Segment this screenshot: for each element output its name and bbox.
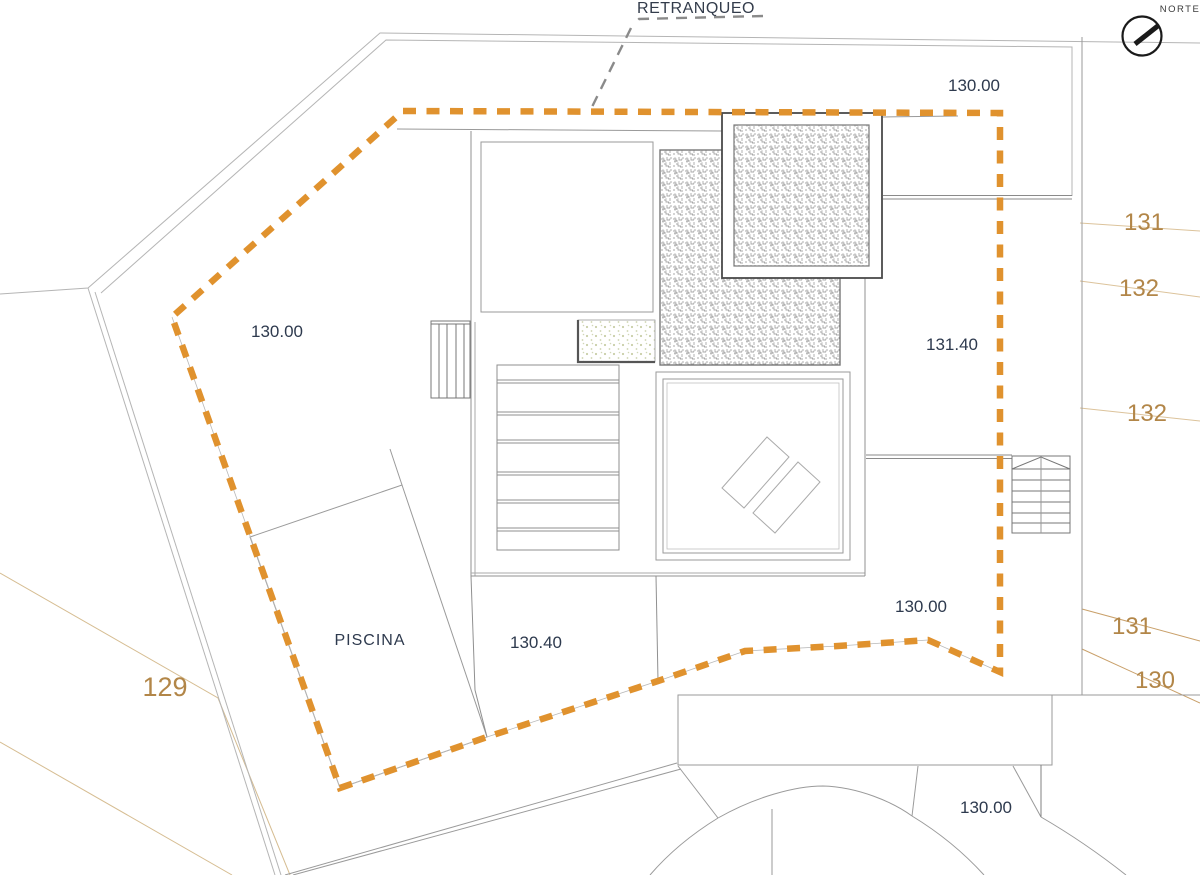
pool-area <box>250 449 487 788</box>
roof-upper-left-room <box>481 142 653 312</box>
lower-right-room <box>656 372 850 560</box>
retranqueo-label: RETRANQUEO <box>637 0 755 17</box>
turning-circle-arc <box>718 786 912 818</box>
contour-line <box>0 573 290 875</box>
contour-label-132-mid: 132 <box>1127 400 1167 427</box>
turning-circle-arc <box>1041 817 1126 875</box>
compass-needle <box>1135 25 1159 44</box>
contour-label-132-top: 132 <box>1119 275 1159 302</box>
leader-line <box>633 16 763 25</box>
upper-terrace-edge <box>866 455 1012 459</box>
north-compass-icon: NORTE <box>1123 4 1200 56</box>
piscina-label: PISCINA <box>334 632 405 649</box>
site-plan-drawing: RETRANQUEO NORTE 130.00 130.00 131.40 13… <box>0 0 1200 875</box>
platform-top-edge <box>883 116 958 117</box>
turning-circle-joint <box>912 766 918 816</box>
contour-label-130-bottom: 130 <box>1135 667 1175 694</box>
plot-boundary-line <box>95 292 281 875</box>
stairs-left <box>431 321 470 398</box>
elevation-label-lower-terrace: 130.00 <box>895 597 947 616</box>
room-outline <box>656 372 850 560</box>
platform-top-edge <box>397 129 722 131</box>
pergola-louvers <box>497 365 619 550</box>
turning-circle-joint <box>678 766 718 818</box>
turning-circle-joint <box>1013 766 1041 817</box>
elevation-label-top-right: 130.00 <box>948 76 1000 95</box>
elevation-label-driveway: 130.00 <box>960 798 1012 817</box>
elevation-label-left: 130.00 <box>251 322 303 341</box>
leader-line <box>590 28 631 111</box>
pergola-outline <box>497 365 619 550</box>
pool-deck-edge <box>390 449 402 485</box>
turning-circle-arc <box>650 818 718 875</box>
norte-label: NORTE <box>1160 4 1200 15</box>
retranqueo-annotation: RETRANQUEO <box>590 0 763 111</box>
driveway-rect <box>678 695 1052 765</box>
roof-hatch-upper <box>734 125 869 266</box>
plot-boundary-line <box>88 288 275 875</box>
planter <box>578 320 655 362</box>
main-house <box>397 113 1072 737</box>
upper-terrace-edge <box>883 196 1072 200</box>
stairs-right <box>1012 456 1070 533</box>
contour-line <box>0 742 232 875</box>
elevation-label-upper-terrace: 131.40 <box>926 335 978 354</box>
contour-label-131-top: 131 <box>1124 209 1164 236</box>
site-plan-canvas: RETRANQUEO NORTE 130.00 130.00 131.40 13… <box>0 0 1200 875</box>
turning-circle-arc <box>912 816 984 875</box>
contour-label-131-bottom: 131 <box>1112 613 1152 640</box>
deck-divider <box>656 576 658 681</box>
elevation-label-pool-deck: 130.40 <box>510 633 562 652</box>
contour-label-129: 129 <box>142 672 187 702</box>
